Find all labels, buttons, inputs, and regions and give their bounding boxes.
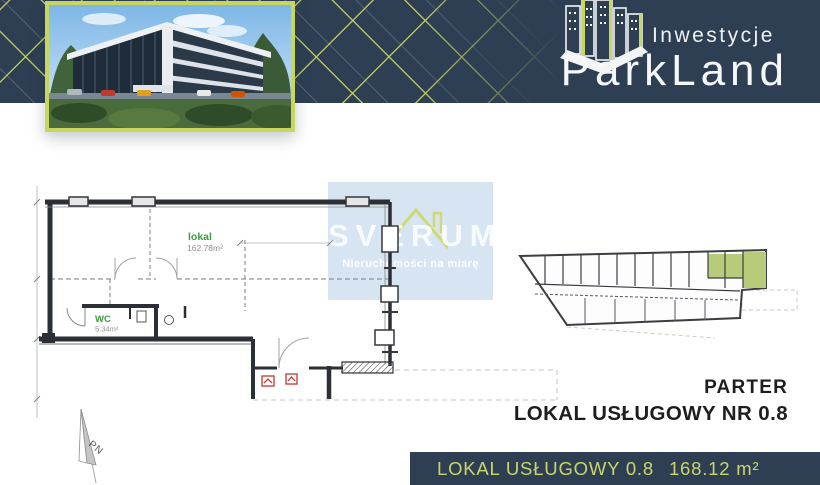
brand-subtitle: Inwestycje bbox=[652, 24, 775, 48]
unit-title: LOKAL USŁUGOWY NR 0.8 bbox=[514, 402, 788, 426]
section-titles: PARTER LOKAL USŁUGOWY NR 0.8 bbox=[514, 377, 788, 426]
footer-bar: LOKAL USŁUGOWY 0.8 168.12 m² bbox=[410, 452, 820, 485]
door-arcs bbox=[67, 258, 309, 368]
brand-name: ParkLand bbox=[561, 46, 789, 96]
flyer-page: Inwestycje ParkLand bbox=[0, 0, 820, 485]
walls bbox=[39, 202, 390, 399]
footer-area-value: 168.12 m² bbox=[669, 458, 760, 480]
floor-plan: lokal 162.78m² WC 5.34m² bbox=[25, 180, 565, 425]
electrical-symbols bbox=[262, 374, 297, 386]
boundary-dashed bbox=[253, 370, 557, 400]
wc-area: 5.34m² bbox=[95, 325, 119, 334]
building-render bbox=[49, 5, 291, 128]
floor-title: PARTER bbox=[514, 377, 788, 399]
room-label: lokal bbox=[188, 231, 212, 243]
partition-dashed-lines bbox=[50, 202, 388, 311]
north-arrow: PN bbox=[55, 403, 117, 485]
room-area: 162.78m² bbox=[187, 243, 223, 253]
building-photo bbox=[45, 1, 295, 132]
footer-unit-label: LOKAL USŁUGOWY 0.8 bbox=[437, 458, 654, 480]
window-blocks bbox=[375, 226, 398, 345]
overview-plan bbox=[505, 238, 805, 348]
hatched-wall bbox=[342, 362, 393, 373]
wall-corner-block bbox=[42, 333, 55, 343]
wc-label: WC bbox=[95, 314, 111, 325]
